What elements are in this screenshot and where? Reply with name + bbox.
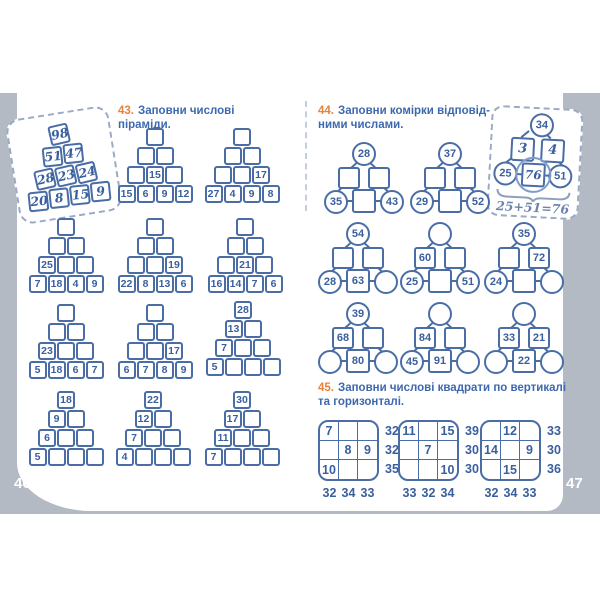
pyramid-row [136, 236, 174, 255]
pyramid: 15156912 [117, 127, 193, 203]
pyramid-cell [57, 342, 75, 360]
diagram: 332122 [484, 302, 564, 374]
pyramid-cell: 20 [27, 190, 49, 212]
exercise-43-number: 43. [118, 105, 134, 117]
col-sum: 33 [358, 486, 377, 500]
pyramid: 2351867 [28, 303, 104, 379]
diagram-square [424, 167, 446, 189]
pyramid-cell: 4 [224, 185, 242, 203]
exercise-45-title-line1: Заповни числові квадрати по вертикалі [338, 382, 566, 394]
diagram-middle-square: 63 [346, 269, 370, 293]
row-sum: 39 [465, 424, 479, 438]
pyramid-cell: 7 [125, 429, 143, 447]
pyramid-cell [144, 429, 162, 447]
pyramid-cell: 8 [156, 361, 174, 379]
diagram-top-circle: 39 [346, 302, 370, 326]
pyramid-cell [127, 166, 145, 184]
diagram-top-circle: 54 [346, 222, 370, 246]
grid-cell [400, 460, 419, 479]
pyramid-cell: 12 [135, 410, 153, 428]
row-sum: 35 [385, 462, 399, 476]
pyramid-cell: 5 [29, 361, 47, 379]
pyramid-cell [244, 358, 262, 376]
exercise-44-number: 44. [318, 105, 334, 117]
pyramid-row: 161476 [207, 274, 283, 293]
diagram-middle-square [352, 189, 376, 213]
diagram: 357224 [484, 222, 564, 294]
pyramid-row: 13 [224, 319, 262, 338]
pyramid-cell [146, 218, 164, 236]
diagram-top-circle: 37 [438, 142, 462, 166]
pyramid: 18965 [28, 390, 104, 466]
pyramid-cell [233, 128, 251, 146]
pyramid-cell [236, 218, 254, 236]
diagram-middle-square [438, 189, 462, 213]
pyramid-row: 18 [57, 390, 76, 409]
grid-cell: 15 [501, 460, 520, 479]
pyramid-row [146, 217, 165, 236]
col-sum: 32 [419, 486, 438, 500]
pyramid: 176789 [117, 303, 193, 379]
pyramid-cell: 6 [38, 429, 56, 447]
pyramid-cell [76, 256, 94, 274]
diagram-bottom-circle [540, 270, 564, 294]
grid-cells: 1214915 [480, 420, 541, 481]
diagram-bottom-circle [484, 350, 508, 374]
pyramid-row: 228136 [117, 274, 193, 293]
row-sum: 36 [547, 462, 561, 476]
diagram-middle-square: 22 [512, 349, 536, 373]
grid-cell [339, 422, 358, 441]
pyramid-cell: 22 [118, 275, 136, 293]
page-number-left: 46 [14, 475, 31, 492]
col-sum: 34 [501, 486, 520, 500]
pyramid-row: 12 [134, 409, 172, 428]
pyramid-cell: 30 [233, 391, 251, 409]
pyramid-cell: 7 [86, 361, 104, 379]
grid-cell [520, 422, 539, 441]
grid-cell [419, 422, 438, 441]
pyramid-row: 22 [144, 390, 163, 409]
diagram: 283543 [324, 142, 404, 214]
pyramid-cell: 21 [236, 256, 254, 274]
pyramid-cell [146, 256, 164, 274]
pyramid-cell [146, 342, 164, 360]
pyramid-cell [233, 429, 251, 447]
pyramid-row: 17 [214, 165, 271, 184]
pyramid-row: 51867 [28, 360, 104, 379]
pyramid-row [233, 127, 252, 146]
pyramid-cell: 47 [62, 142, 84, 164]
pyramid-row [57, 217, 76, 236]
pyramid-cell: 7 [29, 275, 47, 293]
pyramid-cell [57, 256, 75, 274]
pyramid-cell: 14 [227, 275, 245, 293]
pyramid-cell [263, 358, 281, 376]
pyramid-cell [48, 448, 66, 466]
pyramid-cell [156, 147, 174, 165]
grid-cell: 15 [438, 422, 457, 441]
pyramid-row: 17 [127, 341, 184, 360]
diagram-bottom-circle [374, 270, 398, 294]
pyramid-row: 7 [215, 338, 272, 357]
diagram-bottom-circle: 25 [400, 270, 424, 294]
diagram-square: 84 [414, 327, 436, 349]
pyramid-cell [243, 410, 261, 428]
grid-cell [320, 441, 339, 460]
diagram-middle-square [512, 269, 536, 293]
pyramid-cell: 8 [137, 275, 155, 293]
pyramid-cell [233, 166, 251, 184]
grid-cell [482, 422, 501, 441]
pyramid-cell: 15 [118, 185, 136, 203]
diagram-top-circle [428, 302, 452, 326]
grid-cell [419, 460, 438, 479]
pyramid-cell [127, 342, 145, 360]
diagram-bottom-circle: 51 [456, 270, 480, 294]
pyramid-row: 5 [205, 357, 281, 376]
pyramid-cell: 15 [146, 166, 164, 184]
pyramid-cell [165, 166, 183, 184]
pyramid-cell [48, 323, 66, 341]
pyramid-cell [173, 448, 191, 466]
pyramid-cell [163, 429, 181, 447]
diagram-top-circle: 35 [512, 222, 536, 246]
grid-cell [339, 460, 358, 479]
pyramid-cell: 15 [68, 183, 90, 205]
pyramid-cell: 17 [252, 166, 270, 184]
pyramid-cell: 24 [74, 160, 98, 184]
pyramid-cell: 19 [165, 256, 183, 274]
example-caption: 25+51=76 [488, 199, 577, 218]
row-sum: 32 [385, 443, 399, 457]
pyramid-cell [214, 166, 232, 184]
diagram-bottom-circle: 43 [380, 190, 404, 214]
pyramid-cell: 9 [243, 185, 261, 203]
pyramid-cell: 18 [48, 361, 66, 379]
pyramid-row [136, 322, 174, 341]
grid-cells: 1115710 [398, 420, 459, 481]
row-sum: 30 [547, 443, 561, 457]
pyramid-row: 5 [28, 447, 104, 466]
pyramid-cell [244, 320, 262, 338]
example-top-circle: 34 [529, 113, 554, 138]
exercise-45-title-line2: та горизонталі. [318, 396, 404, 408]
pyramid-cell: 23 [38, 342, 56, 360]
pyramid-row: 17 [223, 409, 261, 428]
pyramid-cell: 13 [225, 320, 243, 338]
pyramid-cell [243, 147, 261, 165]
pyramid-cell [146, 128, 164, 146]
pyramid-cell: 28 [234, 301, 252, 319]
diagram-bottom-circle [540, 350, 564, 374]
pyramid-cell [262, 448, 280, 466]
exercise-44-title-line2: ними числами. [318, 119, 403, 131]
pyramid-cell [253, 339, 271, 357]
pyramid-cell: 4 [67, 275, 85, 293]
example-highlight-ring [514, 156, 552, 194]
diagram-bottom-circle: 29 [410, 190, 434, 214]
pyramid-cell: 5 [29, 448, 47, 466]
diagram-square: 60 [414, 247, 436, 269]
diagram-bottom-circle [374, 350, 398, 374]
pyramid-row: 7 [125, 428, 182, 447]
pyramid-cell [217, 256, 235, 274]
pyramid-cell: 4 [116, 448, 134, 466]
pyramid-cell: 5 [206, 358, 224, 376]
pyramid-cell [67, 323, 85, 341]
col-sum: 34 [438, 486, 457, 500]
number-grid: 1214915333036323433 [480, 420, 570, 504]
ex43-example-box: 985147282324208159 [4, 105, 123, 226]
pyramid: 19228136 [117, 217, 193, 293]
diagram-bottom-circle: 24 [484, 270, 508, 294]
grid-cell: 14 [482, 441, 501, 460]
pyramid-cell: 17 [165, 342, 183, 360]
diagram-middle-square: 80 [346, 349, 370, 373]
pyramid-cell [224, 147, 242, 165]
diagram-square [332, 247, 354, 269]
pyramid-cell: 98 [47, 122, 71, 146]
diagram-square [338, 167, 360, 189]
pyramid-cell [57, 218, 75, 236]
pyramid-cell: 9 [175, 361, 193, 379]
diagram-bottom-circle: 35 [324, 190, 348, 214]
pyramid: 985147282324208159 [16, 117, 112, 213]
pyramid: 3017117 [204, 390, 280, 466]
exercise-45-title: 45.Заповни числові квадрати по вертикалі… [318, 381, 568, 409]
pyramid-cell: 27 [205, 185, 223, 203]
diagram-square [362, 247, 384, 269]
pyramid-cell: 7 [205, 448, 223, 466]
pyramid-cell [67, 237, 85, 255]
pyramid-row: 15 [127, 165, 184, 184]
pyramid-cell: 18 [48, 275, 66, 293]
pyramid-row: 156912 [117, 184, 193, 203]
pyramid-row: 6789 [117, 360, 193, 379]
pyramid-cell: 6 [265, 275, 283, 293]
pyramid-cell [67, 410, 85, 428]
pyramid-cell [227, 237, 245, 255]
grid-cell [501, 441, 520, 460]
diagram: 542863 [318, 222, 398, 294]
pyramid-cell [127, 256, 145, 274]
pyramid-cell [137, 147, 155, 165]
diagram-square: 72 [528, 247, 550, 269]
pyramid-row: 19 [127, 255, 184, 274]
pyramid-cell: 6 [137, 185, 155, 203]
pyramid-cell: 51 [41, 145, 63, 167]
pyramid-cell [57, 429, 75, 447]
example-bottom-circle: 51 [548, 164, 573, 189]
pyramid-cell: 25 [38, 256, 56, 274]
grid-cell: 8 [339, 441, 358, 460]
diagram: 396880 [318, 302, 398, 374]
diagram-square [454, 167, 476, 189]
grid-cell [400, 441, 419, 460]
exercise-44-title-line1: Заповни комірки відповід- [338, 105, 490, 117]
pyramid-row [47, 322, 85, 341]
pyramid-row: 9 [47, 409, 85, 428]
grid-cell: 11 [400, 422, 419, 441]
diagram-square [444, 327, 466, 349]
pyramid-row: 4 [115, 447, 191, 466]
grid-cell: 7 [419, 441, 438, 460]
diagram-bottom-circle [318, 350, 342, 374]
diagram-middle-square [428, 269, 452, 293]
diagram-bottom-circle: 45 [400, 350, 424, 374]
exercise-44-title: 44.Заповни комірки відповід-ними числами… [318, 104, 494, 132]
diagram-bottom-circle [456, 350, 480, 374]
pyramid-cell [86, 448, 104, 466]
pyramid-cell: 17 [224, 410, 242, 428]
pyramid-row [136, 146, 174, 165]
example-bottom-circle: 25 [493, 161, 518, 186]
pyramid-cell: 7 [137, 361, 155, 379]
pyramid-row [236, 217, 255, 236]
pyramid-cell [48, 237, 66, 255]
pyramid-row [57, 303, 76, 322]
pyramid: 1727498 [204, 127, 280, 203]
diagram-top-circle [428, 222, 452, 246]
number-grid: 1115710393030333234 [398, 420, 488, 504]
col-sum: 34 [339, 486, 358, 500]
pyramid-cell [246, 237, 264, 255]
pyramid-cell: 7 [246, 275, 264, 293]
pyramid-cell: 9 [48, 410, 66, 428]
diagram: 844591 [400, 302, 480, 374]
pyramid-cell: 12 [175, 185, 193, 203]
pyramid-cell: 8 [262, 185, 280, 203]
page-divider [305, 101, 307, 211]
pyramid-row [226, 236, 264, 255]
pyramid-cell: 8 [48, 187, 70, 209]
diagram: 372952 [410, 142, 490, 214]
col-sum: 32 [482, 486, 501, 500]
pyramid-cell: 22 [144, 391, 162, 409]
diagram-square [444, 247, 466, 269]
pyramid-row: 21 [217, 255, 274, 274]
pyramid-row: 7 [204, 447, 280, 466]
diagram-square: 21 [528, 327, 550, 349]
col-sum: 33 [400, 486, 419, 500]
pyramid-cell [156, 237, 174, 255]
pyramid-cell: 6 [175, 275, 193, 293]
pyramid-row: 6 [38, 428, 95, 447]
diagram-middle-square: 91 [428, 349, 452, 373]
pyramid-row: 27498 [204, 184, 280, 203]
pyramid-cell [225, 358, 243, 376]
exercise-45-number: 45. [318, 382, 334, 394]
pyramid-cell [67, 448, 85, 466]
diagram-bottom-circle: 52 [466, 190, 490, 214]
pyramid: 21161476 [207, 217, 283, 293]
diagram-bottom-circle: 28 [318, 270, 342, 294]
pyramid-cell [252, 429, 270, 447]
grid-cell [438, 441, 457, 460]
grid-cell: 10 [320, 460, 339, 479]
pyramid-cell [255, 256, 273, 274]
diagram-top-circle [512, 302, 536, 326]
pyramid-cell: 7 [215, 339, 233, 357]
pyramid-cell: 6 [118, 361, 136, 379]
ex44-example-box: 34 3 4 25 76 51 25+51=76 [486, 105, 584, 221]
grid-cell: 10 [438, 460, 457, 479]
grid-cell: 9 [520, 441, 539, 460]
grid-cells: 78910 [318, 420, 379, 481]
pyramid-cell [234, 339, 252, 357]
pyramid-cell: 13 [156, 275, 174, 293]
row-sum: 30 [465, 443, 479, 457]
pyramid-cell [146, 304, 164, 322]
diagram-square [368, 167, 390, 189]
pyramid-row: 23 [38, 341, 95, 360]
pyramid-row: 98 [47, 122, 71, 146]
pyramid-cell [76, 342, 94, 360]
pyramid-cell [224, 448, 242, 466]
grid-cell [520, 460, 539, 479]
pyramid-cell [154, 410, 172, 428]
grid-cell [482, 460, 501, 479]
pyramid-cell: 9 [86, 275, 104, 293]
pyramid-row: 28 [234, 300, 253, 319]
pyramid-cell: 9 [89, 180, 111, 202]
ex43-example-pyramid: 985147282324208159 [16, 117, 112, 213]
pyramid-row [223, 146, 261, 165]
pyramid-row: 71849 [28, 274, 104, 293]
pyramid-row: 30 [233, 390, 252, 409]
pyramid-cell: 9 [156, 185, 174, 203]
number-grid: 78910323235323433 [318, 420, 408, 504]
pyramid-cell [137, 323, 155, 341]
pyramid-cell: 6 [67, 361, 85, 379]
diagram: 602551 [400, 222, 480, 294]
grid-cell [358, 460, 377, 479]
pyramid-cell: 16 [208, 275, 226, 293]
col-sum: 33 [520, 486, 539, 500]
grid-cell: 7 [320, 422, 339, 441]
pyramid-cell: 11 [214, 429, 232, 447]
pyramid-cell [154, 448, 172, 466]
diagram-square [362, 327, 384, 349]
pyramid-cell [137, 237, 155, 255]
grid-cell [358, 422, 377, 441]
pyramid-cell: 18 [57, 391, 75, 409]
diagram-square [498, 247, 520, 269]
pyramid-cell [243, 448, 261, 466]
pyramid-cell [135, 448, 153, 466]
row-sum: 32 [385, 424, 399, 438]
diagram-square: 33 [498, 327, 520, 349]
pyramid: 281375 [205, 300, 281, 376]
pyramid: 221274 [115, 390, 191, 466]
row-sum: 30 [465, 462, 479, 476]
grid-cell: 12 [501, 422, 520, 441]
pyramid-cell [156, 323, 174, 341]
row-sum: 33 [547, 424, 561, 438]
pyramid-cell [57, 304, 75, 322]
diagram-square: 68 [332, 327, 354, 349]
pyramid-row [146, 127, 165, 146]
pyramid-row: 25 [38, 255, 95, 274]
grid-cell: 9 [358, 441, 377, 460]
col-sum: 32 [320, 486, 339, 500]
pyramid: 2571849 [28, 217, 104, 293]
pyramid-row [146, 303, 165, 322]
pyramid-row [47, 236, 85, 255]
pyramid-row: 11 [214, 428, 271, 447]
diagram-top-circle: 28 [352, 142, 376, 166]
